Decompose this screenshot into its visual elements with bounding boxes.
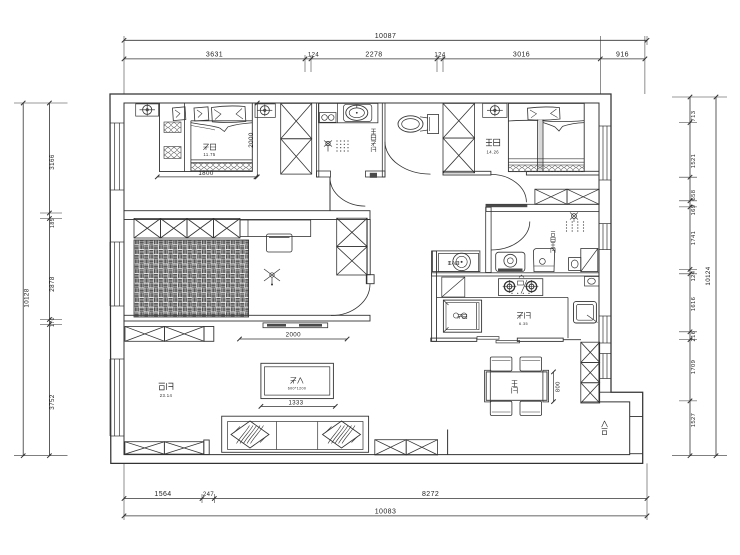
svg-text:216: 216 xyxy=(691,331,697,342)
svg-text:1527: 1527 xyxy=(691,413,697,428)
svg-text:1741: 1741 xyxy=(691,231,697,246)
svg-text:10128: 10128 xyxy=(24,288,31,307)
svg-text:1564: 1564 xyxy=(154,491,171,498)
svg-text:1800: 1800 xyxy=(198,170,214,177)
svg-text:124: 124 xyxy=(308,53,319,59)
svg-text:713: 713 xyxy=(691,111,697,122)
svg-text:1333: 1333 xyxy=(289,400,304,406)
svg-text:11.75: 11.75 xyxy=(203,152,215,157)
svg-text:800: 800 xyxy=(556,381,562,392)
svg-text:3631: 3631 xyxy=(206,52,223,59)
svg-text:600*1200: 600*1200 xyxy=(288,387,307,391)
svg-text:185: 185 xyxy=(50,218,56,228)
svg-text:1709: 1709 xyxy=(691,360,697,375)
svg-text:23.14: 23.14 xyxy=(160,393,173,398)
svg-text:6.35: 6.35 xyxy=(519,322,528,326)
svg-text:170: 170 xyxy=(50,317,56,327)
svg-text:169: 169 xyxy=(691,205,697,216)
svg-text:3752: 3752 xyxy=(49,394,56,410)
svg-text:124: 124 xyxy=(434,53,445,59)
svg-text:124: 124 xyxy=(691,270,697,281)
svg-text:2000: 2000 xyxy=(248,132,255,148)
svg-text:3016: 3016 xyxy=(513,52,530,59)
svg-text:2278: 2278 xyxy=(365,52,382,59)
svg-text:14.26: 14.26 xyxy=(487,150,500,155)
svg-text:247: 247 xyxy=(203,492,214,498)
svg-text:3166: 3166 xyxy=(49,154,56,170)
svg-text:8272: 8272 xyxy=(422,491,439,498)
svg-text:2878: 2878 xyxy=(49,276,56,292)
svg-text:1616: 1616 xyxy=(691,297,697,312)
svg-text:10087: 10087 xyxy=(375,33,396,40)
svg-text:658: 658 xyxy=(691,190,697,201)
svg-text:10083: 10083 xyxy=(375,509,396,516)
svg-text:1521: 1521 xyxy=(691,154,697,169)
svg-text:916: 916 xyxy=(616,52,629,59)
svg-text:10124: 10124 xyxy=(705,266,712,285)
svg-text:2000: 2000 xyxy=(286,332,302,339)
